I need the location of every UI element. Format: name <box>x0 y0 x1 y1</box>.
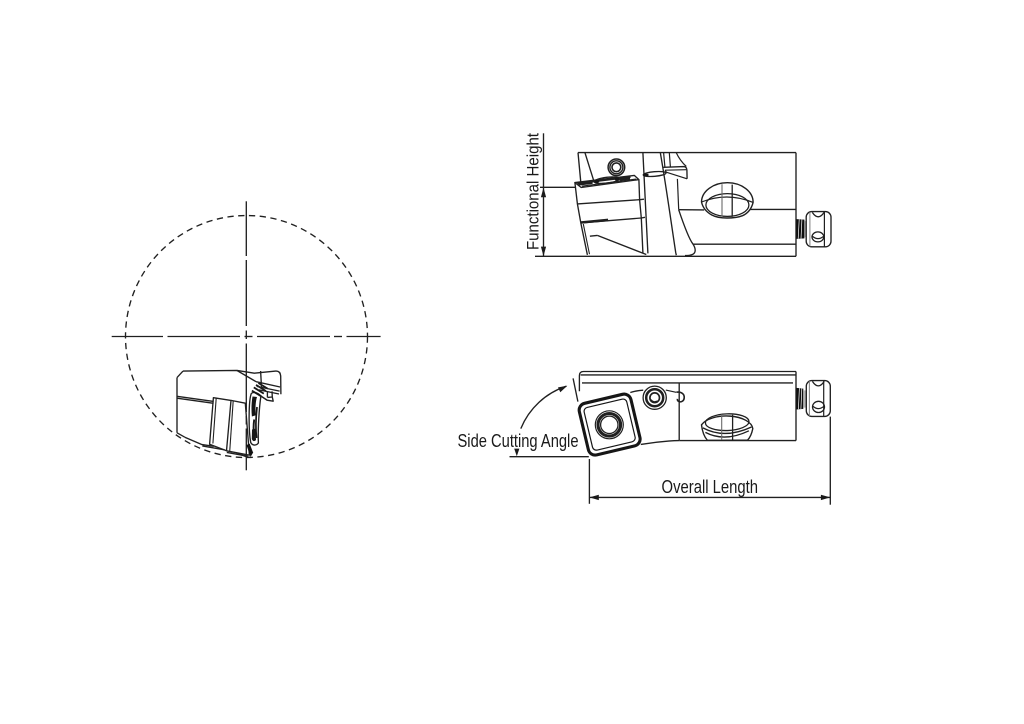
svg-text:Functional Height: Functional Height <box>524 133 543 250</box>
svg-text:Overall Length: Overall Length <box>662 477 759 497</box>
svg-text:Side Cutting Angle: Side Cutting Angle <box>458 431 579 451</box>
